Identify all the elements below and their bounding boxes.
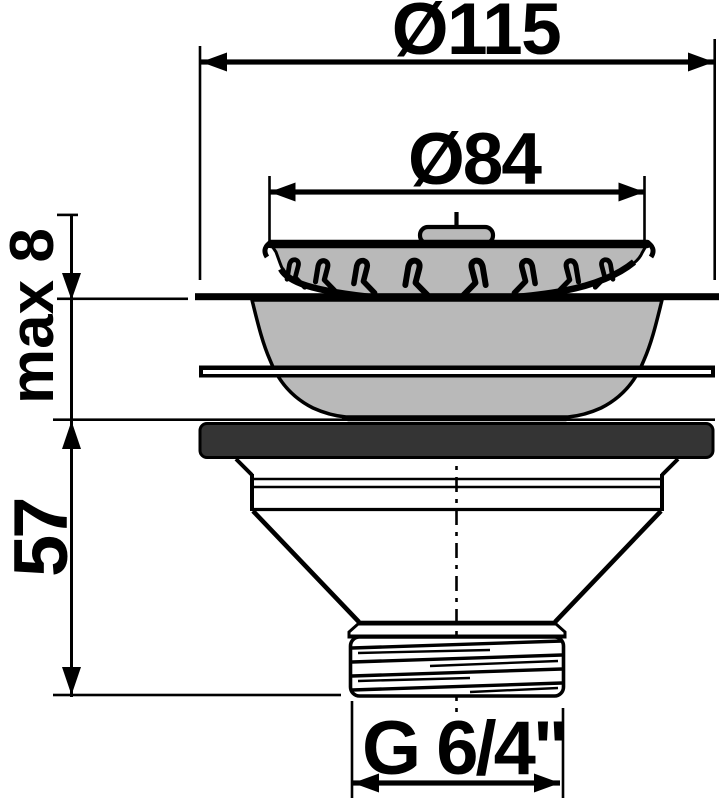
svg-text:max 8: max 8 bbox=[0, 228, 67, 404]
svg-text:Ø84: Ø84 bbox=[408, 119, 542, 200]
